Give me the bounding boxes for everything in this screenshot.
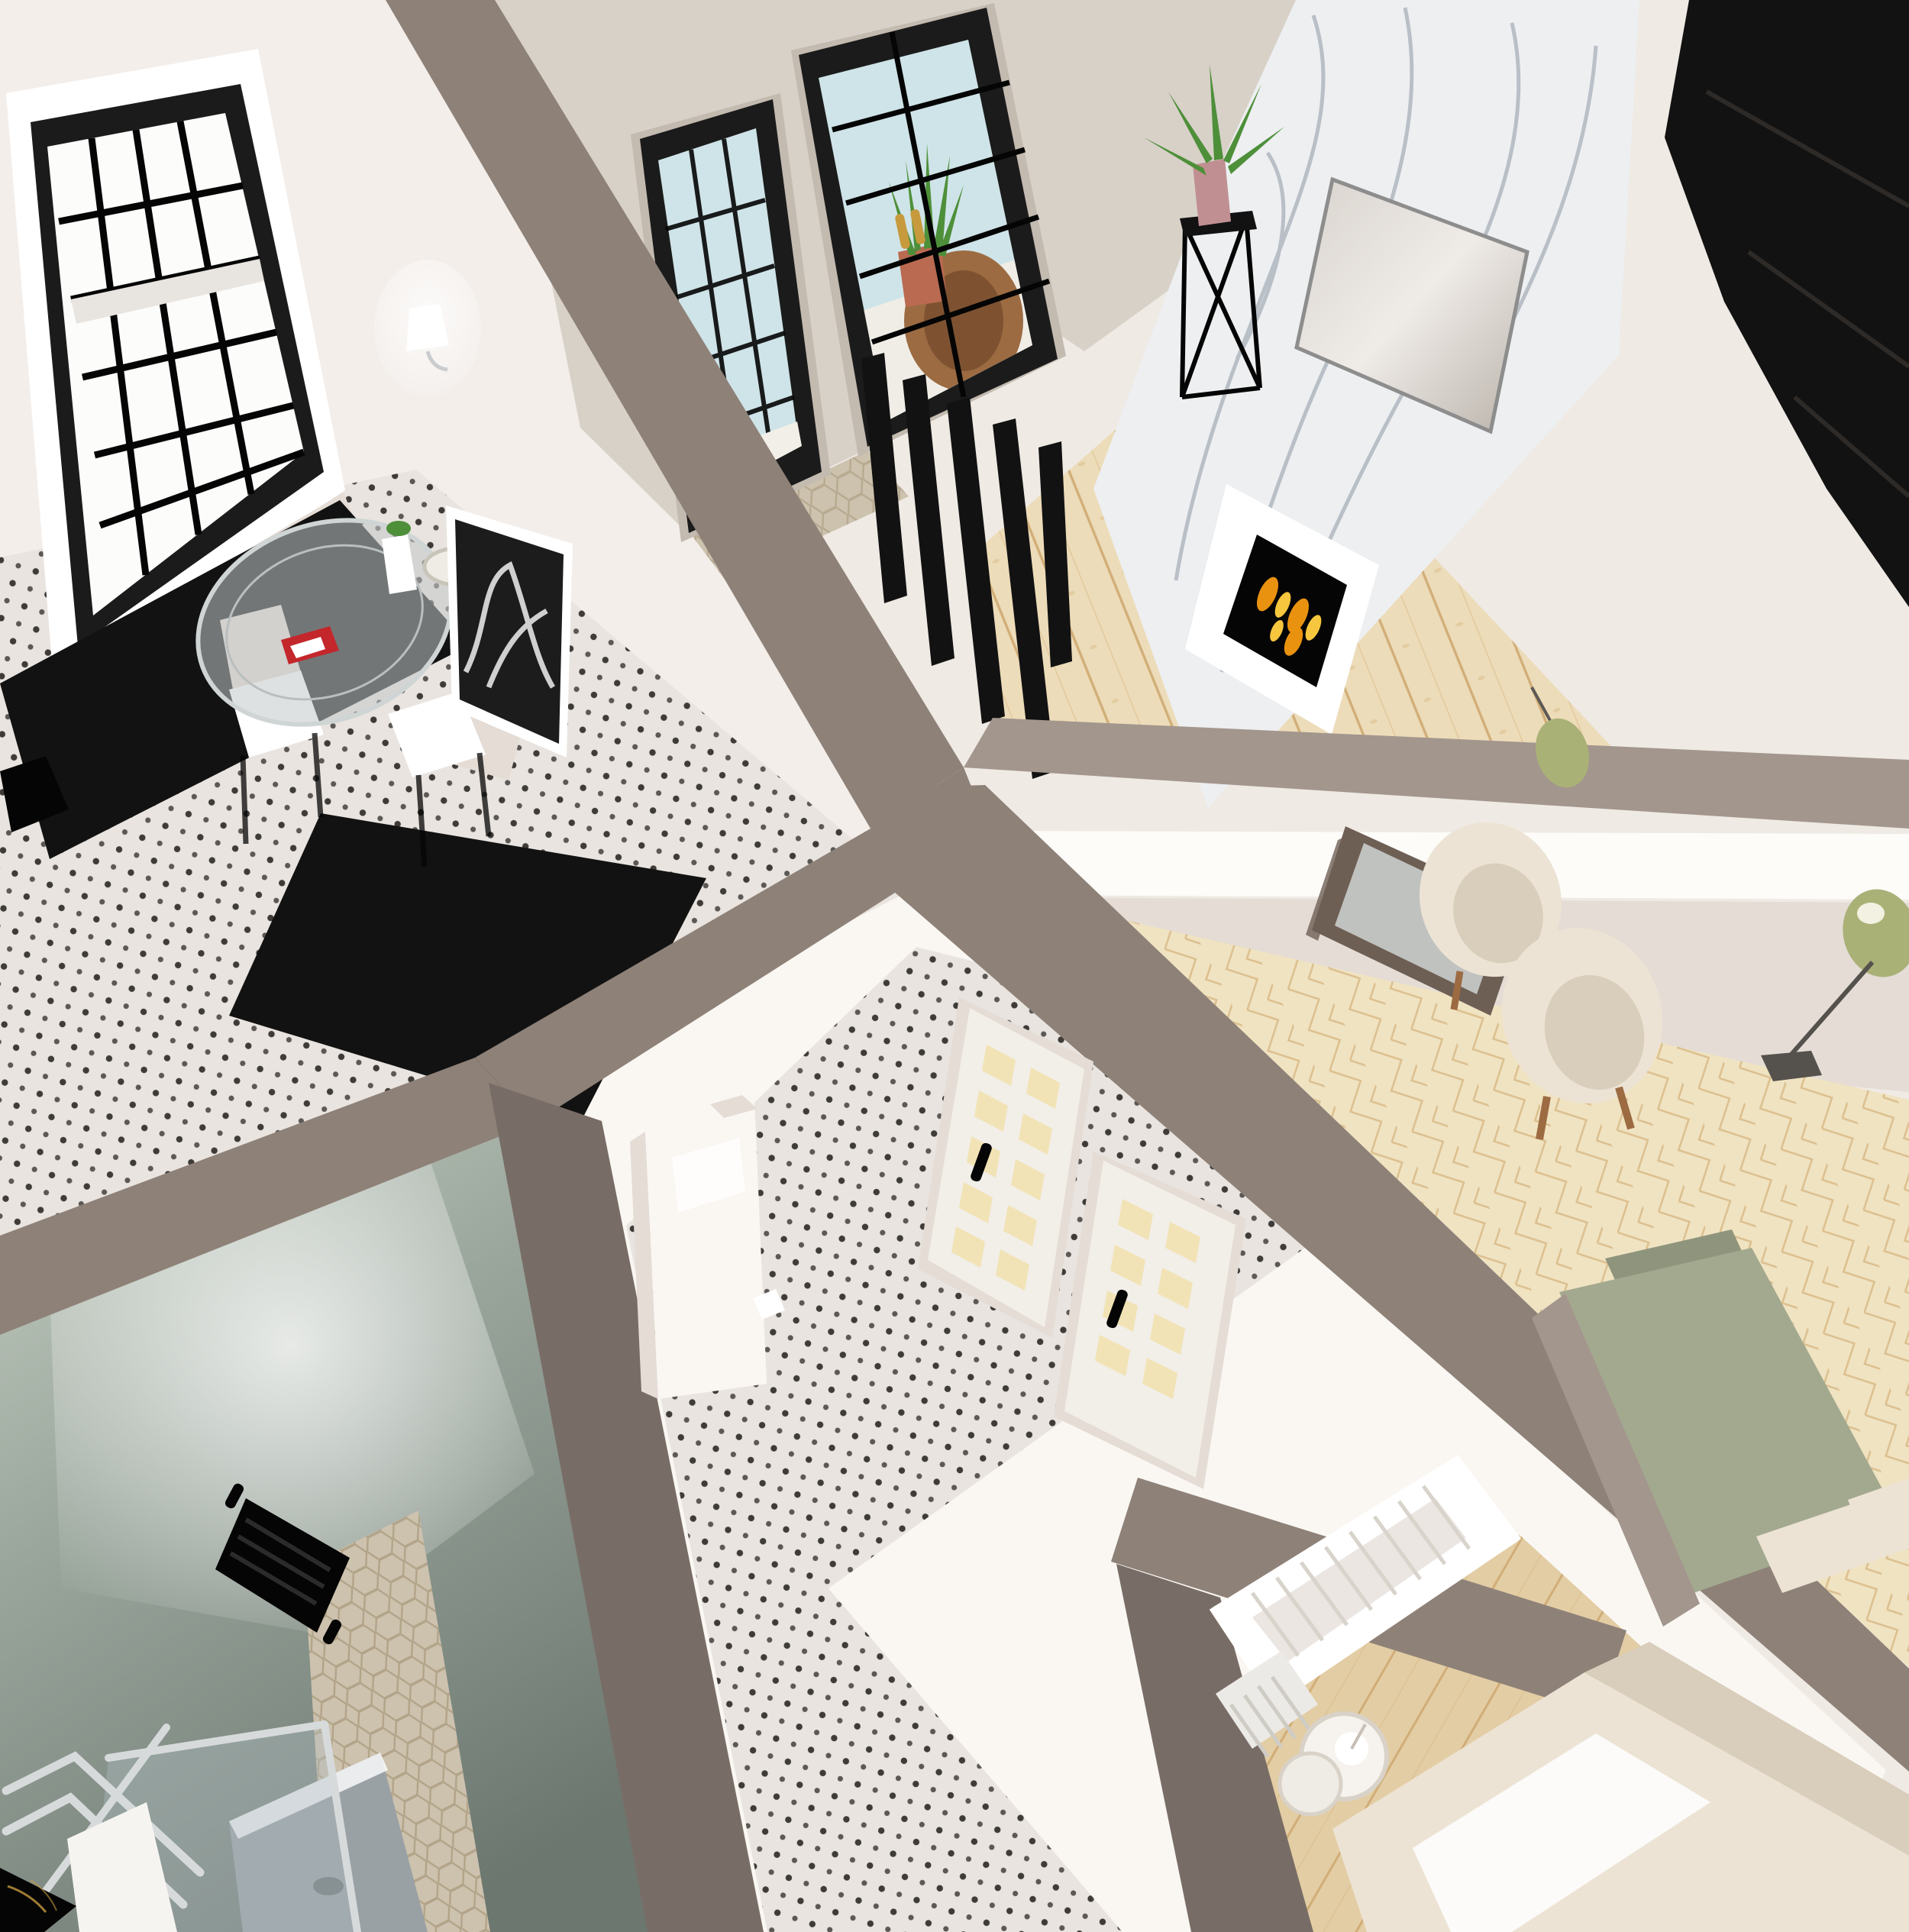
render-canvas — [0, 0, 1909, 1932]
vase-plant — [386, 521, 411, 536]
apartment-render — [0, 0, 1909, 1932]
wall-sconce — [374, 260, 481, 397]
